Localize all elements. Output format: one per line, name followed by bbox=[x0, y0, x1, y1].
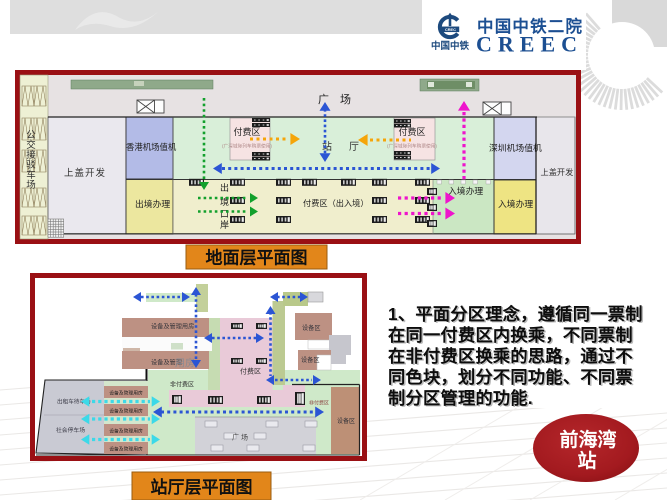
svg-text:付费区: 付费区 bbox=[240, 367, 261, 376]
svg-text:非付费区: 非付费区 bbox=[170, 381, 194, 389]
svg-text:非付费区: 非付费区 bbox=[309, 400, 329, 407]
svg-text:设备及管理用房: 设备及管理用房 bbox=[109, 446, 143, 453]
svg-text:出境办理: 出境办理 bbox=[135, 198, 170, 209]
svg-text:(广深城际列车购票使用): (广深城际列车购票使用) bbox=[387, 143, 437, 150]
svg-text:入境办理: 入境办理 bbox=[498, 198, 533, 209]
svg-text:站厅层平面图: 站厅层平面图 bbox=[151, 477, 253, 497]
svg-text:场: 场 bbox=[26, 180, 36, 191]
svg-text:深圳机场值机: 深圳机场值机 bbox=[489, 142, 542, 153]
svg-text:香港机场值机: 香港机场值机 bbox=[126, 142, 177, 152]
svg-text:入境办理: 入境办理 bbox=[448, 185, 483, 196]
svg-text:广 场: 广 场 bbox=[318, 92, 351, 106]
svg-text:上盖开发: 上盖开发 bbox=[64, 167, 106, 179]
svg-text:岸: 岸 bbox=[220, 220, 229, 230]
svg-text:设备及管理用房: 设备及管理用房 bbox=[109, 428, 143, 435]
svg-text:用房: 用房 bbox=[175, 357, 195, 370]
svg-text:在非付费区换乘的思路，通过不: 在非付费区换乘的思路，通过不 bbox=[388, 346, 633, 366]
svg-text:地面层平面图: 地面层平面图 bbox=[206, 248, 308, 268]
svg-text:付费区（出入境）: 付费区（出入境） bbox=[303, 198, 369, 208]
svg-text:设备及管理用房: 设备及管理用房 bbox=[109, 408, 143, 415]
svg-text:厅: 厅 bbox=[349, 142, 359, 153]
svg-text:在同一付费区内换乘，不同票制: 在同一付费区内换乘，不同票制 bbox=[388, 325, 633, 345]
svg-text:1、平面分区理念，遵循同一票制: 1、平面分区理念，遵循同一票制 bbox=[388, 304, 643, 324]
svg-text:出: 出 bbox=[220, 182, 229, 193]
svg-text:CREC: CREC bbox=[445, 28, 456, 32]
svg-text:付费区: 付费区 bbox=[398, 126, 425, 137]
svg-text:制分区管理的功能.: 制分区管理的功能. bbox=[388, 388, 533, 408]
svg-text:站: 站 bbox=[577, 449, 596, 472]
svg-text:设备区: 设备区 bbox=[337, 417, 355, 425]
svg-text:广 场: 广 场 bbox=[232, 433, 248, 442]
svg-text:CREEC: CREEC bbox=[476, 32, 583, 57]
svg-text:设备区: 设备区 bbox=[301, 356, 320, 364]
svg-text:设备及管理用房: 设备及管理用房 bbox=[109, 390, 143, 397]
svg-text:上盖开发: 上盖开发 bbox=[541, 167, 574, 177]
svg-text:同色块，划分不同功能、不同票: 同色块，划分不同功能、不同票 bbox=[388, 367, 633, 387]
svg-text:付费区: 付费区 bbox=[233, 126, 260, 137]
svg-text:(广深城际列车购票使用): (广深城际列车购票使用) bbox=[222, 143, 272, 150]
svg-text:社会停车场: 社会停车场 bbox=[56, 426, 85, 434]
svg-text:设备及管理用房: 设备及管理用房 bbox=[151, 323, 194, 331]
svg-text:站: 站 bbox=[322, 140, 332, 153]
svg-text:设备区: 设备区 bbox=[302, 324, 321, 332]
svg-text:中国中铁: 中国中铁 bbox=[431, 40, 470, 52]
svg-text:前海湾: 前海湾 bbox=[559, 428, 616, 451]
